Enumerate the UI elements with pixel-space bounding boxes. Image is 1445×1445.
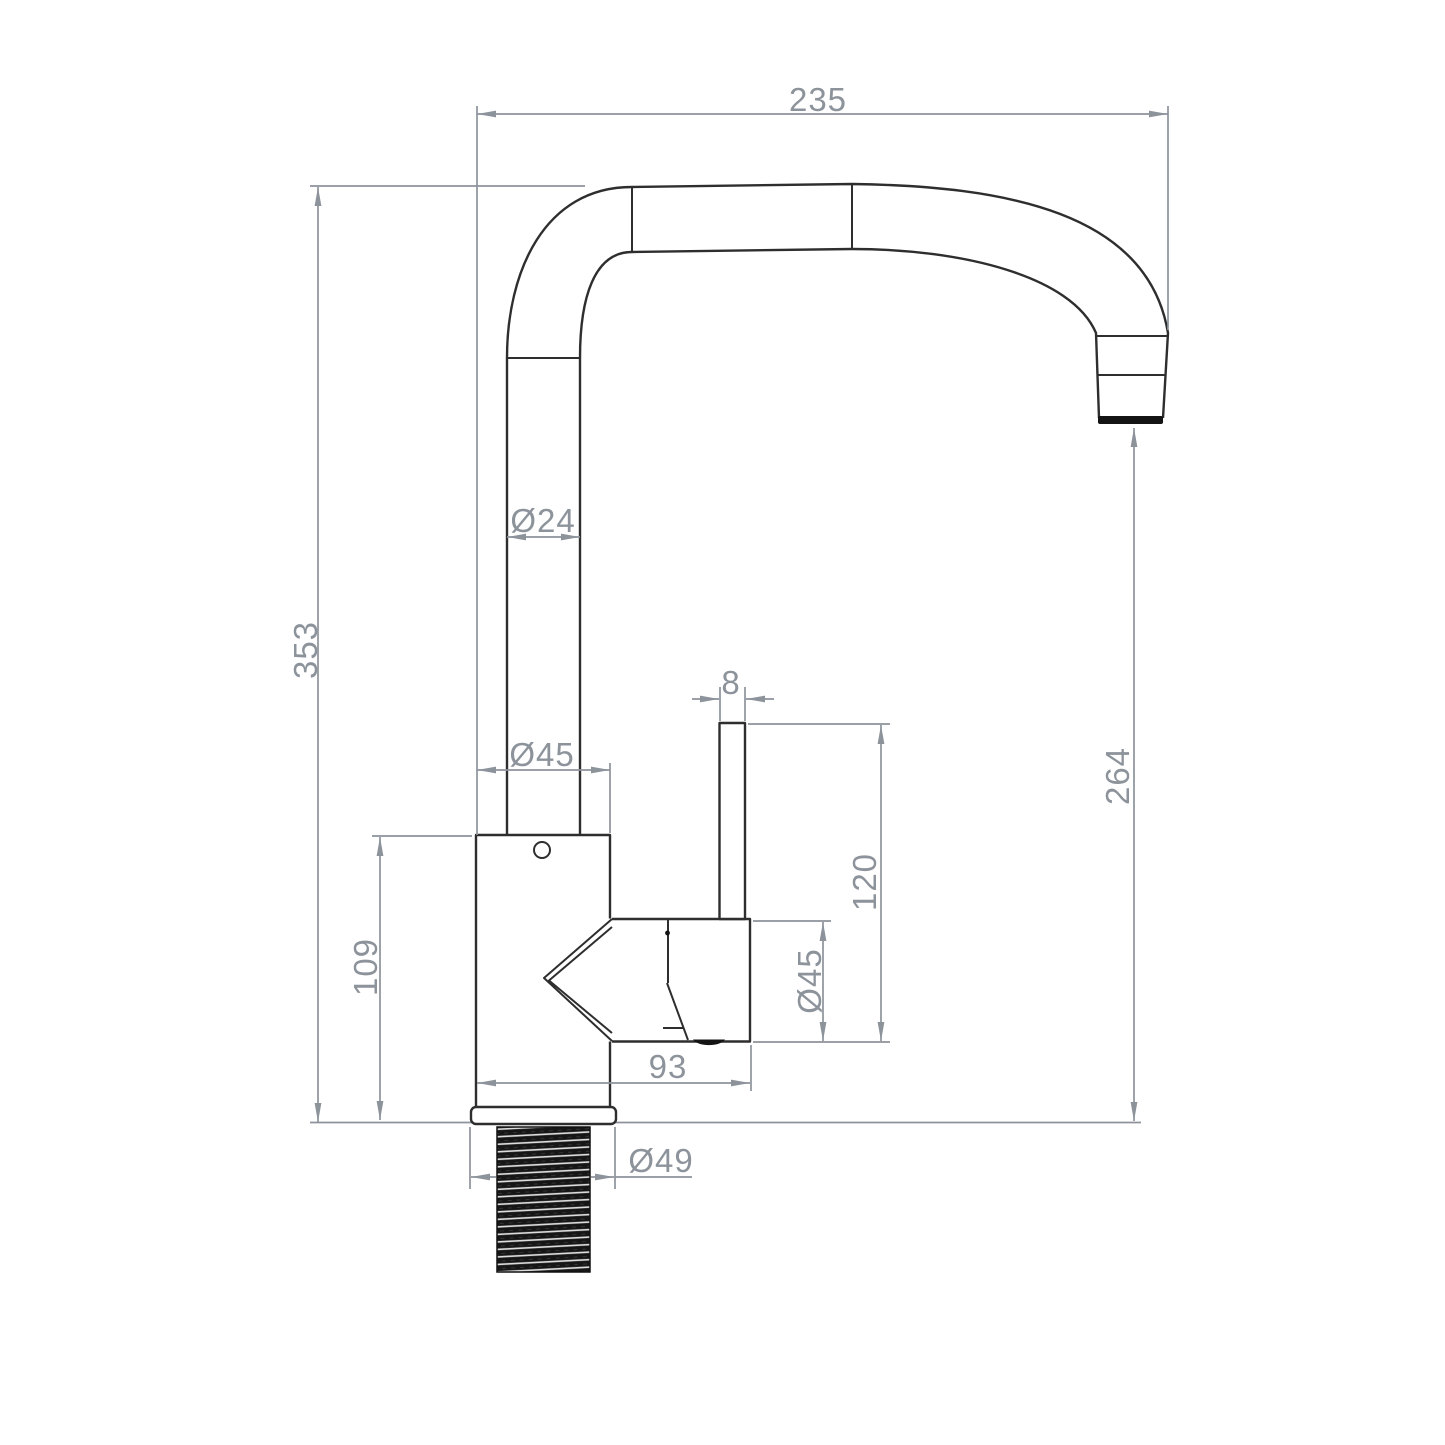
spout-outer-profile <box>507 184 1168 836</box>
valve-pin <box>665 931 670 936</box>
aerator-face <box>1098 416 1163 424</box>
spray-outlet <box>693 1040 725 1046</box>
dim-outlet-height-label: 264 <box>1099 747 1136 805</box>
dim-body-length-label: 93 <box>649 1048 688 1085</box>
dim-lever-thickness: 8 <box>692 664 774 721</box>
dim-lever-thickness-label: 8 <box>721 664 740 701</box>
body-pin-hole <box>534 842 550 858</box>
threaded-shank <box>497 1127 590 1272</box>
dim-spout-reach-label: 235 <box>789 81 847 118</box>
dim-spout-tube-label: Ø24 <box>510 502 575 539</box>
faucet-body <box>476 835 610 1108</box>
dim-body-height-label: 109 <box>347 938 384 996</box>
dim-overall-height: 353 <box>287 186 585 1122</box>
dim-valve-diameter-label: Ø45 <box>791 948 828 1013</box>
valve-seam-lines <box>663 919 688 1040</box>
base-flange <box>471 1107 616 1124</box>
dim-body-diameter: Ø45 <box>477 736 610 833</box>
dim-lever-height-label: 120 <box>846 853 883 911</box>
faucet-dimension-drawing: 235 353 Ø24 Ø45 8 120 <box>0 0 1445 1445</box>
lever-handle <box>720 723 746 919</box>
dim-body-length: 93 <box>477 1045 751 1091</box>
spout-inner-profile <box>580 249 1099 836</box>
technical-drawing-canvas: 235 353 Ø24 Ø45 8 120 <box>0 0 1445 1445</box>
dim-valve-diameter: Ø45 <box>753 921 831 1041</box>
dim-outlet-height: 264 <box>1099 428 1136 1121</box>
body-valve-wedge <box>544 919 612 1041</box>
dim-spout-tube-diameter: Ø24 <box>507 502 580 539</box>
dim-flange-diameter-label: Ø49 <box>628 1142 693 1179</box>
dim-body-diameter-label: Ø45 <box>509 736 574 773</box>
dim-overall-height-label: 353 <box>287 621 324 679</box>
dim-body-height: 109 <box>347 836 472 1120</box>
spout-joint-lines <box>507 184 1168 375</box>
faucet-outline <box>471 184 1168 1272</box>
dimension-annotations: 235 353 Ø24 Ø45 8 120 <box>287 81 1168 1189</box>
